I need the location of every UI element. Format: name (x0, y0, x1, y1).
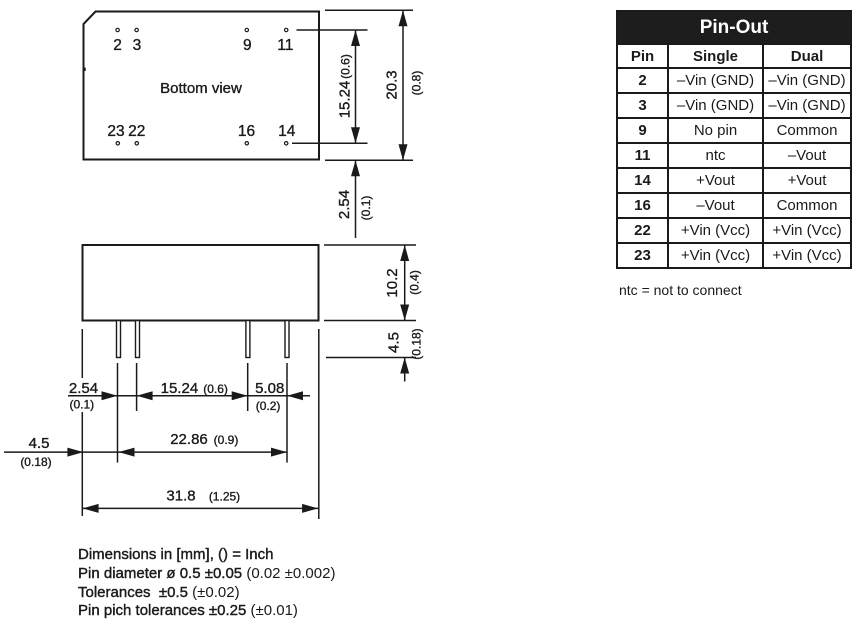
svg-text:(0.8): (0.8) (410, 71, 424, 96)
svg-text:22: 22 (128, 123, 145, 140)
svg-text:23: 23 (107, 123, 124, 140)
svg-text:20.3: 20.3 (384, 70, 401, 99)
svg-text:(0.6): (0.6) (339, 54, 353, 79)
svg-text:(0.4): (0.4) (408, 270, 422, 295)
svg-text:16: 16 (238, 123, 255, 140)
svg-text:Bottom view: Bottom view (160, 80, 242, 97)
svg-text:4.5: 4.5 (386, 332, 403, 353)
svg-text:15.24: 15.24 (337, 81, 354, 119)
svg-text:5.08: 5.08 (255, 380, 284, 397)
svg-text:9: 9 (243, 37, 252, 54)
svg-text:(0.18): (0.18) (20, 455, 51, 469)
svg-text:15.24: 15.24 (161, 380, 199, 397)
svg-text:31.8: 31.8 (166, 488, 195, 505)
svg-text:14: 14 (278, 123, 296, 140)
svg-text:2.54: 2.54 (336, 190, 353, 219)
svg-text:(0.6): (0.6) (203, 382, 228, 396)
svg-text:2.54: 2.54 (69, 380, 98, 397)
svg-text:(0.2): (0.2) (256, 399, 281, 413)
svg-text:(0.1): (0.1) (359, 196, 373, 221)
svg-text:(0.9): (0.9) (214, 433, 239, 447)
svg-text:10.2: 10.2 (384, 268, 401, 297)
svg-text:22.86: 22.86 (170, 431, 208, 448)
svg-text:3: 3 (133, 37, 142, 54)
svg-text:(1.25): (1.25) (209, 490, 240, 504)
svg-text:(0.1): (0.1) (69, 398, 94, 412)
svg-text:(0.18): (0.18) (410, 328, 424, 359)
svg-text:11: 11 (277, 37, 293, 54)
svg-text:2: 2 (113, 37, 122, 54)
svg-text:4.5: 4.5 (29, 435, 50, 452)
